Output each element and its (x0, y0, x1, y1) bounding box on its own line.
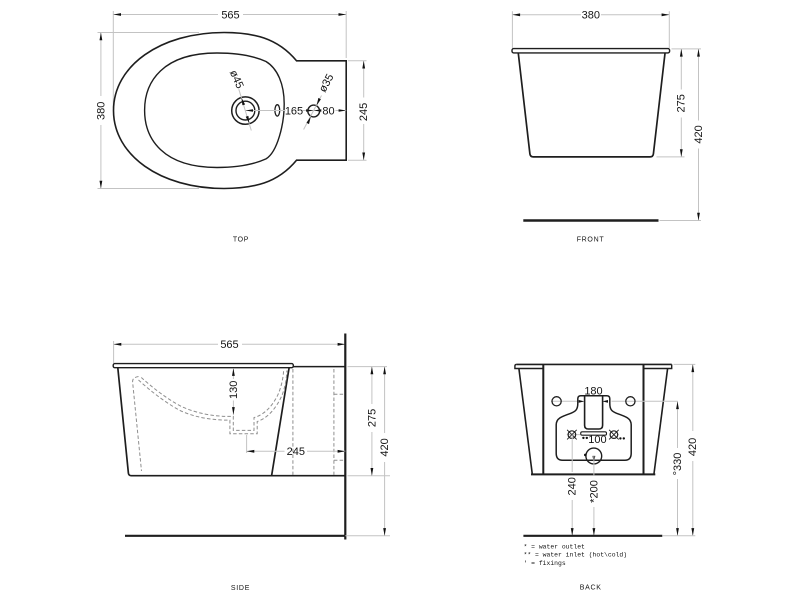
svg-text:** = water inlet (hot\cold): ** = water inlet (hot\cold) (524, 552, 628, 559)
svg-text:80: 80 (322, 105, 334, 117)
svg-text:' = fixings: ' = fixings (524, 560, 566, 567)
svg-text:245: 245 (287, 446, 305, 458)
svg-text:BACK: BACK (580, 585, 602, 592)
svg-text:165: 165 (285, 105, 303, 117)
svg-text:565: 565 (220, 339, 238, 351)
svg-text:380: 380 (95, 102, 107, 120)
svg-text:TOP: TOP (233, 237, 249, 244)
svg-text:SIDE: SIDE (231, 585, 250, 592)
svg-text:* = water outlet: * = water outlet (524, 543, 586, 550)
svg-text:°330: °330 (672, 453, 684, 476)
svg-text:245: 245 (358, 103, 370, 121)
svg-text:240: 240 (567, 477, 579, 495)
svg-text:420: 420 (693, 125, 705, 143)
svg-text:565: 565 (221, 9, 239, 21)
svg-text:420: 420 (687, 438, 699, 456)
svg-text:275: 275 (676, 94, 688, 112)
svg-text:130: 130 (228, 381, 240, 399)
svg-text:100: 100 (588, 434, 606, 446)
svg-text:275: 275 (366, 409, 378, 427)
svg-text:380: 380 (582, 10, 600, 22)
svg-text:*200: *200 (588, 480, 600, 503)
svg-text:420: 420 (379, 438, 391, 456)
svg-text:FRONT: FRONT (577, 237, 605, 244)
